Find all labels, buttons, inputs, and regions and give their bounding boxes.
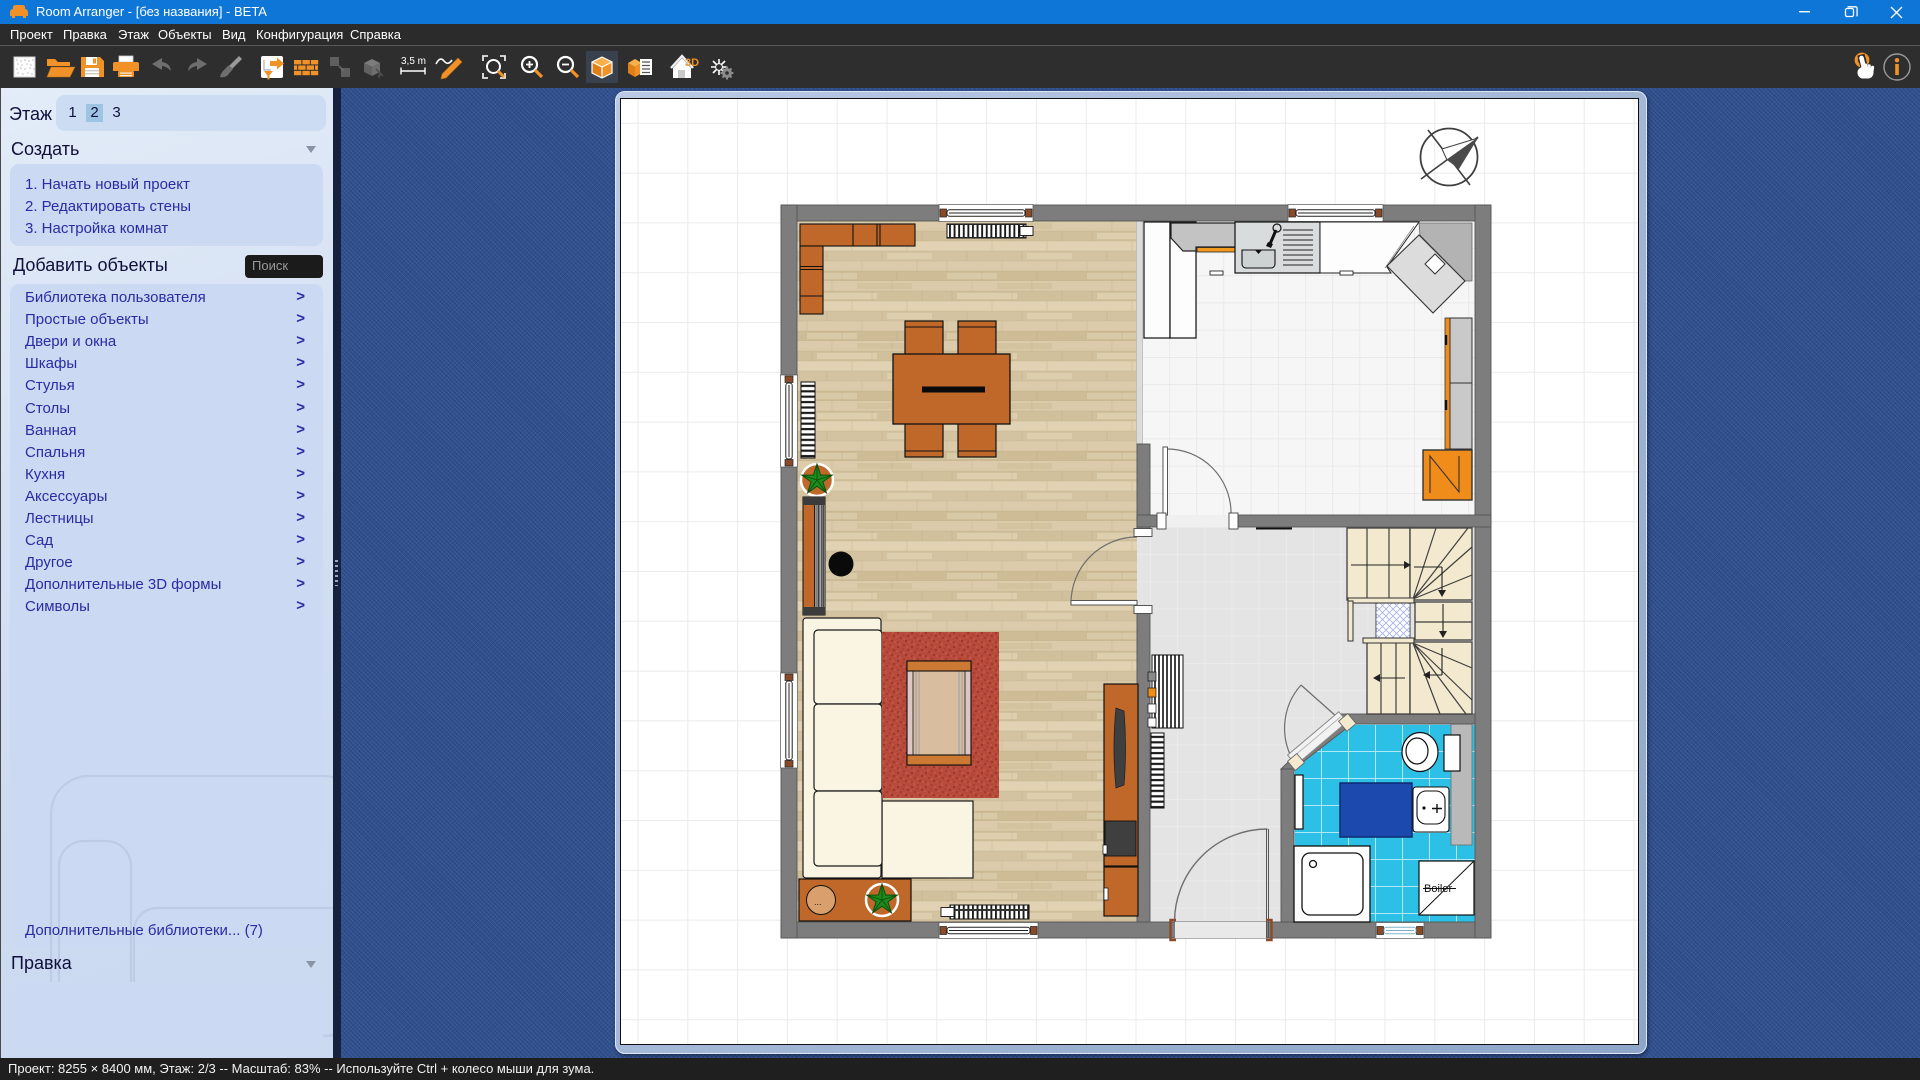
svg-text:3D: 3D	[685, 57, 699, 69]
svg-text:Boiler: Boiler	[1424, 883, 1452, 895]
svg-text:...: ...	[814, 897, 822, 907]
svg-text:3,5 m: 3,5 m	[401, 56, 426, 67]
